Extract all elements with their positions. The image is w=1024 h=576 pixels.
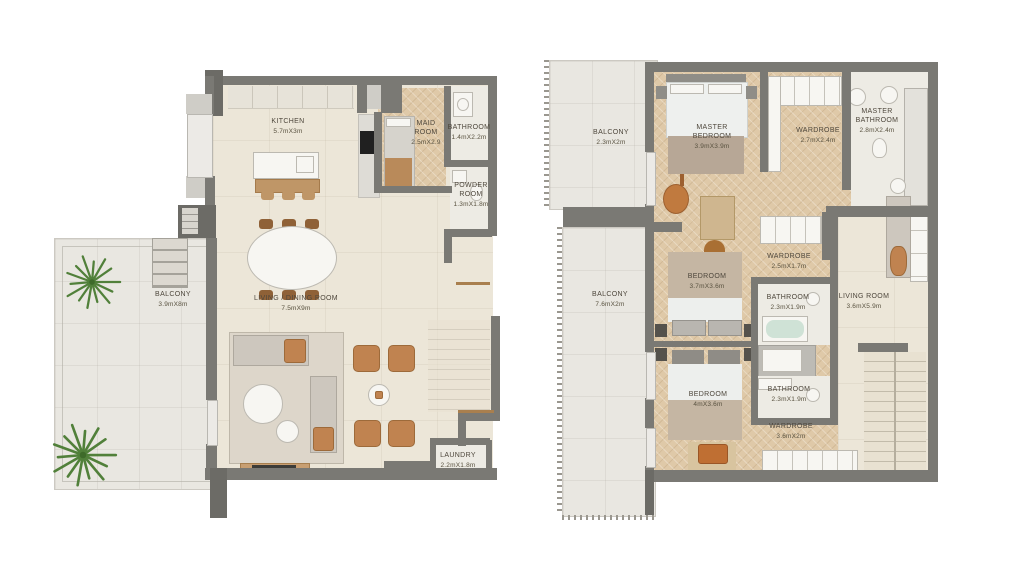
room-label-living-room: LIVING ROOM 3.6mX5.9m: [829, 293, 899, 310]
wall-segment: [374, 186, 452, 193]
room-dims: 2.3mX1.9m: [756, 304, 820, 311]
room-name: LAUNDRY: [428, 452, 488, 461]
room-label-bathroom: BATHROOM 1.4mX2.2m: [439, 124, 499, 141]
guitar: [663, 184, 689, 214]
wall-segment: [210, 468, 227, 518]
door-threshold: [458, 410, 494, 413]
room-label-wardrobe-mid: WARDROBE 2.5mX1.7m: [757, 253, 821, 270]
wardrobe-closet: [779, 76, 842, 106]
bar-stool: [261, 191, 274, 200]
room-label-bathroom-2: BATHROOM 2.3mX1.9m: [757, 386, 821, 403]
wall-segment: [205, 468, 497, 480]
room-dims: 2.2mX1.8m: [428, 462, 488, 469]
room-name: POWDER ROOM: [448, 182, 494, 200]
entry-steps: [182, 208, 198, 234]
room-dims: 2.8mX2.4m: [845, 127, 909, 134]
guitar-neck: [680, 174, 684, 186]
room-label-master-bedroom: MASTER BEDROOM 3.9mX3.9m: [683, 124, 741, 150]
wall-segment: [444, 160, 492, 167]
wall-segment: [444, 229, 452, 263]
room-dims: 7.6mX2m: [580, 301, 640, 308]
pillow: [672, 350, 704, 364]
balcony-stairs: [152, 238, 188, 288]
room-label-master-bathroom: MASTER BATHROOM 2.8mX2.4m: [845, 108, 909, 134]
wall-segment: [357, 85, 367, 113]
interior-staircase: [428, 320, 490, 412]
bed-headboard: [666, 74, 746, 82]
nightstand: [656, 86, 667, 99]
bathroom-sink: [880, 86, 898, 104]
room-label-laundry: LAUNDRY 2.2mX1.8m: [428, 452, 488, 469]
wall-segment: [654, 341, 758, 347]
bathtub-water: [766, 320, 804, 338]
wall-segment: [645, 398, 654, 428]
wall-segment: [826, 206, 930, 217]
wall-segment: [645, 62, 938, 72]
dining-chair: [259, 219, 273, 229]
armchair: [353, 345, 380, 372]
armchair: [388, 345, 415, 372]
room-dims: 5.7mX3m: [253, 128, 323, 135]
door-frame: [367, 85, 381, 109]
nightstand: [655, 324, 667, 337]
room-label-kitchen: KITCHEN 5.7mX3m: [253, 118, 323, 135]
plant: [48, 420, 118, 490]
dining-table: [247, 226, 337, 290]
room-name: BEDROOM: [677, 273, 737, 282]
room-label-wardrobe-bottom: WARDROBE 3.6mX2m: [759, 423, 823, 440]
armchair: [354, 420, 381, 447]
wardrobe-closet: [760, 216, 822, 244]
room-dims: 3.9mX3.9m: [683, 143, 741, 150]
room-dims: 3.7mX3.6m: [677, 283, 737, 290]
window: [646, 352, 656, 400]
bar-stool: [282, 191, 295, 200]
wall-segment: [654, 470, 938, 482]
room-label-balcony-side: BALCONY 7.6mX2m: [580, 291, 640, 308]
bar-stool: [302, 191, 315, 200]
coffee-table: [243, 384, 283, 424]
room-dims: 1.3mX1.8m: [448, 201, 494, 208]
room-dims: 7.5mX9m: [241, 305, 351, 312]
kitchen-sink: [296, 156, 314, 173]
bed-sheet: [668, 298, 742, 322]
wardrobe-closet: [768, 76, 781, 172]
wash-basin: [890, 178, 906, 194]
wall-segment: [654, 222, 682, 232]
wall-segment: [830, 215, 838, 283]
bench-stool: [698, 444, 728, 464]
room-name: LIVING ROOM: [829, 293, 899, 302]
room-name: WARDROBE: [786, 127, 850, 136]
room-label-balcony-top: BALCONY 2.3mX2m: [581, 129, 641, 146]
wall-segment: [858, 343, 908, 352]
wall-segment: [645, 470, 654, 515]
pillow: [708, 84, 742, 94]
toilet: [872, 138, 887, 158]
room-name: WARDROBE: [759, 423, 823, 432]
room-name: BALCONY: [581, 129, 641, 138]
wall-segment: [822, 212, 830, 260]
pillow: [708, 320, 742, 336]
shower-tray: [762, 349, 802, 372]
room-dims: 2.3mX1.9m: [757, 396, 821, 403]
balcony-hatch: [557, 227, 562, 515]
bathtub: [904, 88, 928, 206]
room-name: KITCHEN: [253, 118, 323, 127]
floorplan-canvas: KITCHEN 5.7mX3m MAID ROOM 2.5mX2.9 BATHR…: [0, 0, 1024, 576]
bathroom-basin: [457, 98, 469, 111]
window: [646, 428, 656, 468]
armchair: [388, 420, 415, 447]
pillow: [670, 84, 704, 94]
window: [187, 114, 213, 178]
wall-segment: [374, 112, 382, 192]
chaise-cushion: [284, 339, 306, 363]
balcony-hatch: [544, 60, 549, 208]
room-name: WARDROBE: [757, 253, 821, 262]
wall-segment: [205, 76, 497, 85]
room-dims: 2.7mX2.4m: [786, 137, 850, 144]
window: [646, 152, 656, 206]
room-dims: 3.9mX8m: [143, 301, 203, 308]
wall-segment: [488, 76, 497, 236]
room-label-wardrobe-master: WARDROBE 2.7mX2.4m: [786, 127, 850, 144]
side-table: [276, 420, 299, 443]
room-dims: 3.6mX5.9m: [829, 303, 899, 310]
door-threshold: [456, 282, 490, 285]
plant: [62, 252, 122, 312]
pillow: [672, 320, 706, 336]
room-name: BATHROOM: [756, 294, 820, 303]
room-name: BEDROOM: [678, 391, 738, 400]
room-dims: 4mX3.6m: [678, 401, 738, 408]
wall-segment: [563, 207, 654, 227]
wall-segment: [760, 72, 768, 172]
wall-segment: [430, 438, 490, 445]
room-name: BATHROOM: [757, 386, 821, 395]
stair-rail: [894, 352, 896, 470]
desk: [700, 196, 735, 240]
room-name: MASTER BATHROOM: [845, 108, 909, 126]
room-name: BALCONY: [580, 291, 640, 300]
room-label-balcony: BALCONY 3.9mX8m: [143, 291, 203, 308]
room-label-living-dining: LIVING / DINING ROOM 7.5mX9m: [241, 295, 351, 312]
room-label-bedroom-1: BEDROOM 3.7mX3.6m: [677, 273, 737, 290]
wall-segment: [206, 238, 217, 400]
balcony-door: [207, 400, 218, 446]
room-label-bedroom-2: BEDROOM 4mX3.6m: [678, 391, 738, 408]
wall-segment: [381, 85, 402, 113]
wall-segment: [645, 62, 654, 152]
chaise-cushion: [313, 427, 334, 451]
wall-segment: [928, 62, 938, 482]
nightstand: [655, 348, 667, 361]
chaise-cushion: [890, 246, 907, 276]
kitchen-cabinets: [228, 86, 354, 109]
room-dims: 2.5mX1.7m: [757, 263, 821, 270]
table-decor: [375, 391, 383, 399]
room-name: LIVING / DINING ROOM: [241, 295, 351, 304]
wall-segment: [491, 316, 500, 416]
floor-balcony-side: [562, 227, 656, 517]
room-label-powder-room: POWDER ROOM 1.3mX1.8m: [448, 182, 494, 208]
wall-segment: [645, 204, 654, 352]
room-name: MASTER BEDROOM: [683, 124, 741, 142]
wall-segment: [751, 277, 838, 284]
room-dims: 2.3mX2m: [581, 139, 641, 146]
room-dims: 3.6mX2m: [759, 433, 823, 440]
nightstand: [746, 86, 757, 99]
room-label-bathroom-1: BATHROOM 2.3mX1.9m: [756, 294, 820, 311]
room-dims: 1.4mX2.2m: [439, 134, 499, 141]
window-frame: [186, 94, 212, 114]
maid-bed-blanket: [385, 158, 412, 186]
pillow: [708, 350, 740, 364]
balcony-hatch: [562, 515, 654, 520]
room-name: BALCONY: [143, 291, 203, 300]
room-name: BATHROOM: [439, 124, 499, 133]
